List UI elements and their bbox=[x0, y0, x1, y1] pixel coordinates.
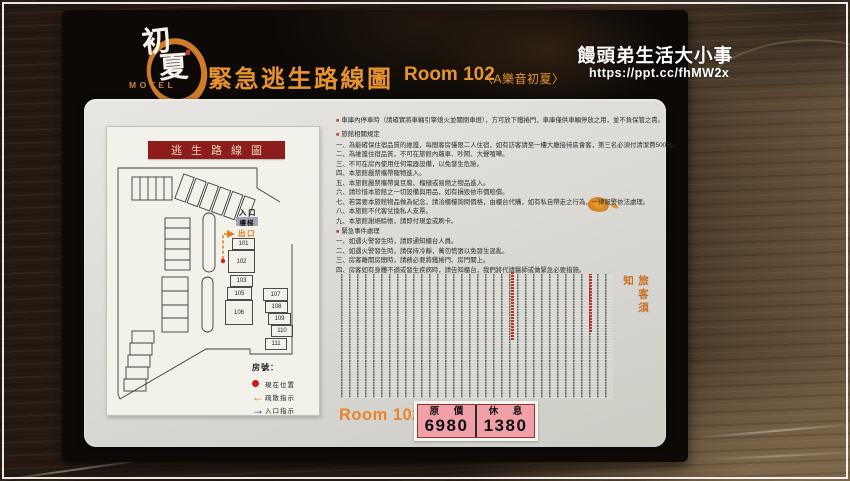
price-value: 1380 bbox=[477, 417, 534, 435]
legend-item: →入口指示 bbox=[252, 403, 322, 416]
sign-title: 緊急逃生路線圖 bbox=[208, 59, 394, 94]
price-cell: 休 息1380 bbox=[475, 405, 534, 437]
stairs-label: 樓梯 bbox=[236, 217, 258, 226]
rule-line: 三、房客離開房間時，請務必要將鐵捲門、房門關上。 bbox=[336, 256, 644, 265]
exit-label: 出口 bbox=[238, 228, 256, 239]
logo-character-2: 夏 bbox=[158, 52, 189, 83]
rule-line: 九、本旅館謝絕賒帳，請即付現金或刷卡。 bbox=[336, 217, 644, 226]
legend-item: 現在位置 bbox=[252, 377, 322, 390]
rule-line: 二、如遇火警發生時，請保持冷靜，萬勿慌張以免發生混亂。 bbox=[336, 247, 644, 256]
photo-of-escape-route-sign: 初 夏 MOTEL 緊急逃生路線圖 Room 102 〈A樂音初夏〉 饅頭弟生活… bbox=[0, 0, 850, 481]
rule-line: ■車庫內停車時（請確實將車輛引擎熄火並關閉車燈），方可放下鐵捲門，車庫僅供車輛停… bbox=[336, 116, 644, 126]
legend-label: 疏散指示 bbox=[265, 392, 295, 402]
rule-line: 六、請珍惜本旅館之一切設備與用品，如有損毀依市價賠償。 bbox=[336, 188, 644, 197]
bullet-square-icon: ■ bbox=[336, 118, 339, 124]
legend-item: ←疏散指示 bbox=[252, 390, 322, 403]
guest-notice-fine-print bbox=[341, 274, 613, 398]
price-value: 6980 bbox=[418, 417, 475, 435]
rule-line: 二、為維護住宿品質，不可在旅館內飆車、吵鬧、大聲喧嘩。 bbox=[336, 150, 644, 159]
notice-section-header-red bbox=[511, 272, 514, 340]
rule-line: 三、不可在房內使用任何電器設備，以免發生危險。 bbox=[336, 160, 644, 169]
price-table: 原 價6980休 息1380 bbox=[417, 404, 535, 438]
rules-text-block: ■車庫內停車時（請確實將車輛引擎熄火並關閉車燈），方可放下鐵捲門，車庫僅供車輛停… bbox=[336, 116, 644, 275]
logo-motel-text: MOTEL bbox=[129, 80, 176, 90]
red-dot-icon bbox=[252, 380, 265, 387]
rule-line: 七、若需要本旅館物品做為紀念，請洽櫃檯詢問價格，由櫃台代購，如有私自帶走之行為，… bbox=[336, 198, 644, 207]
price-cell: 原 價6980 bbox=[418, 405, 475, 437]
navy-arrow-right-icon: → bbox=[252, 406, 265, 414]
watermark-url: https://ppt.cc/fhMW2x bbox=[589, 66, 729, 80]
rule-line: ■緊急事件處理 bbox=[336, 227, 644, 237]
legend-heading: 房號： bbox=[252, 362, 322, 373]
sign-subtitle: 〈A樂音初夏〉 bbox=[481, 70, 565, 87]
orange-arrow-left-icon: ← bbox=[252, 393, 265, 401]
rule-line: 五、本旅館嚴禁攜帶臭豆腐、榴槤或易燃之物品進入。 bbox=[336, 179, 644, 188]
logo-seal-icon bbox=[186, 50, 190, 55]
rule-line: 一、為能確保住宿品質的維護，每間客房僅限二人住宿，如有訪客請至一樓大廳接待區會客… bbox=[336, 141, 644, 150]
legend-label: 入口指示 bbox=[265, 405, 295, 415]
bottom-room-label: Room 102 bbox=[339, 406, 422, 425]
legend-label: 現在位置 bbox=[265, 379, 295, 389]
bullet-square-icon: ■ bbox=[336, 132, 339, 138]
rule-line: 八、本旅館不代客兌換私人支票。 bbox=[336, 207, 644, 216]
bullet-square-icon: ■ bbox=[336, 229, 339, 235]
rule-line: ■旅館相關規定 bbox=[336, 130, 644, 140]
notice-section-header-red bbox=[589, 274, 592, 332]
guest-notice-title: 旅客須知 bbox=[621, 275, 651, 325]
rule-line: 一、如遇火警發生時，請即通知櫃台人員。 bbox=[336, 237, 644, 246]
rule-line: 四、本旅館嚴禁攜帶寵物進入。 bbox=[336, 169, 644, 178]
watermark-blog-name: 饅頭弟生活大小事 bbox=[577, 42, 733, 68]
map-legend: 房號： 現在位置←疏散指示→入口指示 bbox=[252, 362, 322, 416]
price-sticker: 原 價6980休 息1380 bbox=[414, 401, 538, 441]
